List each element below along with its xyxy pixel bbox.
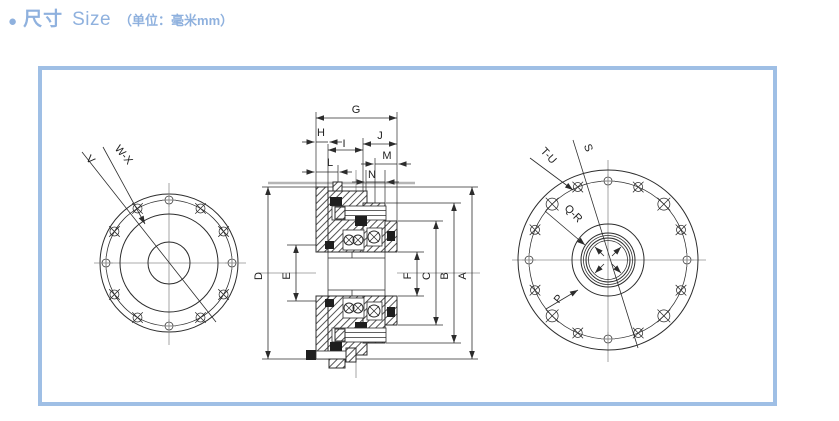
view-label-s: S [581, 142, 595, 153]
dim-label-c: C [421, 272, 433, 280]
cross-section-view: G H I J M L N D E F C B A [253, 104, 480, 378]
back-view-right: T-U S Q-R P [512, 140, 706, 362]
dim-label-l: L [327, 157, 333, 169]
dim-label-a: A [457, 272, 469, 280]
dim-label-e: E [281, 272, 293, 279]
dim-label-n: N [368, 169, 376, 181]
dim-label-m: M [382, 150, 391, 162]
view-label-tu: T-U [538, 145, 559, 166]
view-label-p: P [552, 292, 566, 305]
dim-label-h: H [317, 127, 325, 139]
dimensions-diagram: V W-X [0, 0, 839, 421]
dim-label-f: F [402, 272, 414, 279]
page: ● 尺寸 Size （单位：毫米mm） [0, 0, 839, 421]
dim-label-g: G [352, 104, 361, 116]
view-label-wx: W-X [112, 143, 135, 167]
front-view-left: V W-X [82, 143, 246, 345]
dim-label-j: J [377, 130, 383, 142]
view-label-v: V [83, 153, 97, 167]
dim-label-i: I [342, 138, 345, 150]
view-label-qr: Q-R [562, 203, 585, 226]
dim-label-b: B [439, 272, 451, 279]
dim-label-d: D [253, 272, 265, 280]
